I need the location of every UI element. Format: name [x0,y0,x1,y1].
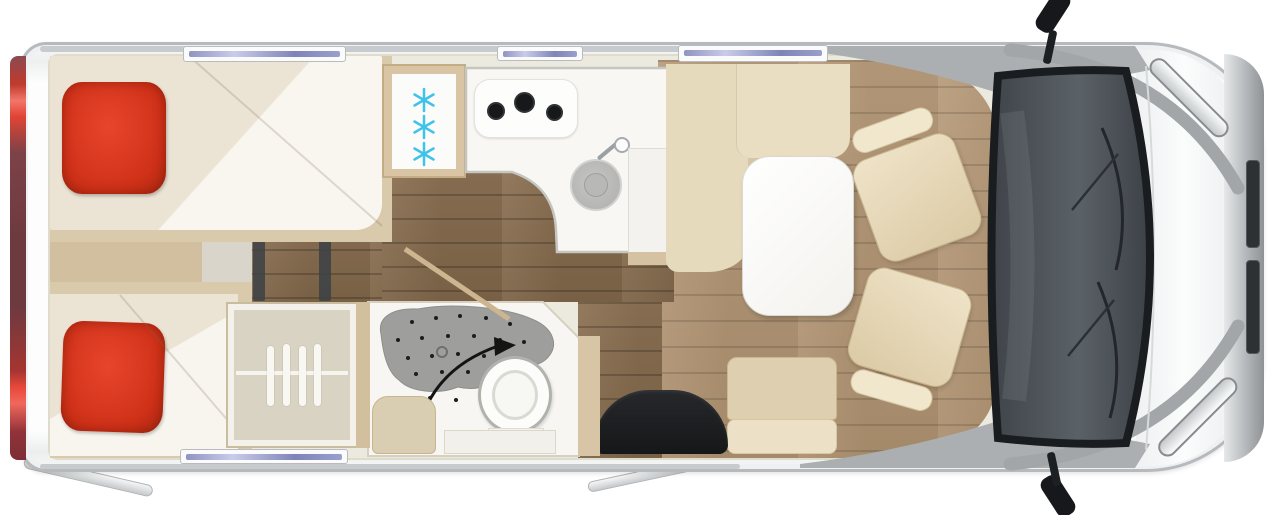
dinette-table [742,156,854,316]
hob-burner-right [546,104,563,121]
pillow-bottom-bed [60,320,166,433]
window-dinette-top [678,45,828,62]
hob-burner-center [514,92,535,113]
sink-basin [584,173,608,197]
grille-lower [1246,260,1260,354]
window-glass [684,50,822,56]
entry-bench-seat [727,419,837,454]
wardrobe [226,302,358,448]
motorhome-floorplan [0,0,1280,515]
window-kitchen-top [497,46,583,61]
window-glass [189,51,340,57]
hob-burner-left [487,102,505,120]
hanger-icon [299,346,306,406]
shower-seat [372,396,436,454]
hanger-icon [314,344,321,406]
hanger-icon [267,346,274,406]
bathroom-side-wall [578,336,600,456]
wardrobe-bathroom-divider [356,302,370,448]
hanger-icon [283,344,290,406]
bathroom-ledge [444,430,556,454]
roof-edge-bottom [40,464,740,469]
fridge-interior [392,74,456,169]
pillow-top-bed [62,82,166,194]
window-bedroom-top [183,46,346,62]
tail-light-strip [10,56,26,460]
entry-bench-back [727,357,837,420]
window-glass [503,51,577,57]
window-bedroom-bottom [180,449,348,464]
dinette-sofa-corner [736,64,850,158]
wardrobe-rail [236,371,348,375]
window-glass [186,454,342,460]
toilet-bowl [492,370,538,420]
front-bumper [1224,54,1264,462]
grille-upper [1246,160,1260,248]
